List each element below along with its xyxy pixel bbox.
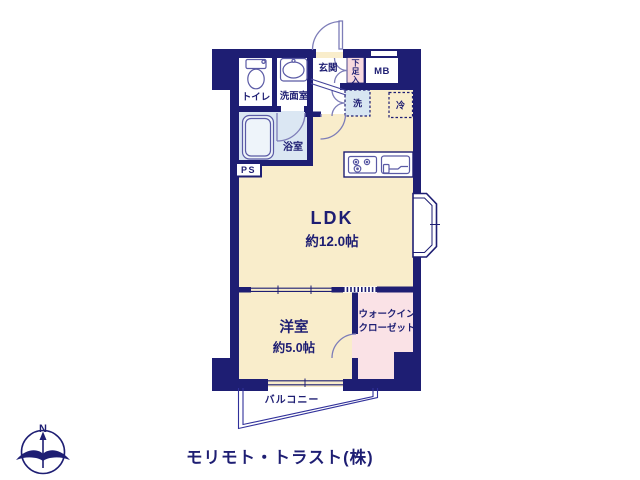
floorplan-canvas: トイレ 洗面室 浴室 玄関 下 足 入 MB PS 洗 冷 LDK 約12.0帖… (0, 0, 640, 480)
label-wic-2: クローゼット (358, 322, 415, 334)
bay-window (413, 194, 440, 258)
wall-right-upper (413, 58, 421, 196)
label-refrigerator: 冷 (396, 100, 405, 111)
compass-bird-body (41, 454, 46, 459)
label-bathroom: 浴室 (283, 140, 303, 153)
wall-washroom-bath-left (237, 106, 281, 112)
label-ldk-size: 約12.0帖 (305, 233, 359, 249)
label-ldk: LDK (311, 208, 354, 228)
stove-icon (349, 157, 377, 174)
company-name: モリモト・トラスト(株) (186, 447, 374, 467)
toilet-icon (246, 60, 266, 89)
wall-washroom-bath-right (304, 106, 313, 112)
entrance-door-arc (312, 22, 340, 51)
wall-bedroom-closet-lower (352, 358, 358, 379)
label-washroom: 洗面室 (280, 90, 309, 102)
label-bedroom-size: 約5.0帖 (273, 340, 316, 355)
wall-bottom-left (230, 379, 268, 391)
wall-toilet-washroom (272, 56, 277, 111)
label-washer: 洗 (353, 98, 362, 109)
mb-louver (371, 51, 398, 57)
compass: N (16, 423, 70, 474)
label-wic-1: ウォークイン (358, 309, 415, 320)
wall-ldk-bedroom-left (239, 287, 251, 293)
hatched-wall-section (343, 287, 377, 293)
label-shoe-3: 入 (351, 76, 360, 85)
wall-mb-right (398, 57, 413, 90)
label-toilet: トイレ (242, 92, 271, 103)
wall-corner-bottom-right (394, 352, 421, 391)
washbasin-icon (281, 59, 308, 82)
wall-hallway-stub (305, 112, 321, 118)
label-bedroom: 洋室 (280, 318, 309, 336)
kitchen-counter (344, 152, 413, 177)
label-entrance: 玄関 (318, 62, 337, 74)
bathtub-icon (243, 116, 274, 160)
label-mb: MB (374, 66, 390, 77)
label-ps: PS (241, 165, 256, 175)
wall-bedroom-closet-upper (352, 287, 358, 334)
label-balcony: バルコニー (265, 394, 320, 406)
entrance-door-leaf (339, 21, 343, 49)
floorplan-svg: トイレ 洗面室 浴室 玄関 下 足 入 MB PS 洗 冷 LDK 約12.0帖… (0, 0, 640, 480)
wall-ldk-closet (377, 287, 413, 293)
